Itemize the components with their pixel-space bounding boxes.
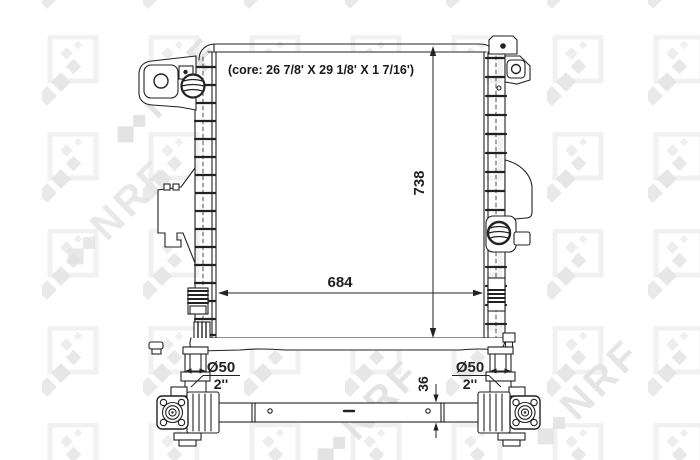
radiator-diagram: NRF [0, 0, 700, 460]
radiator-technical-drawing: NRF [0, 0, 700, 460]
left-port-diameter-label: Ø50 [207, 359, 235, 376]
right-flange [510, 396, 540, 429]
tube-height-dimension-label: 36 [415, 376, 431, 392]
radiator-core [195, 44, 505, 338]
right-port-diameter-label: Ø50 [456, 359, 484, 376]
drain-plug [149, 342, 163, 349]
height-dimension-label: 738 [411, 170, 428, 195]
left-flange [157, 396, 188, 429]
left-port-size-label: 2'' [214, 376, 228, 392]
width-dimension-label: 684 [327, 274, 353, 291]
filler-cap [182, 75, 205, 98]
core-size-label: (core: 26 7/8' X 29 1/8' X 1 7/16') [228, 62, 414, 77]
right-tank-fitting [488, 278, 505, 311]
right-port-size-label: 2'' [463, 376, 477, 392]
left-tank-fitting [188, 288, 208, 314]
